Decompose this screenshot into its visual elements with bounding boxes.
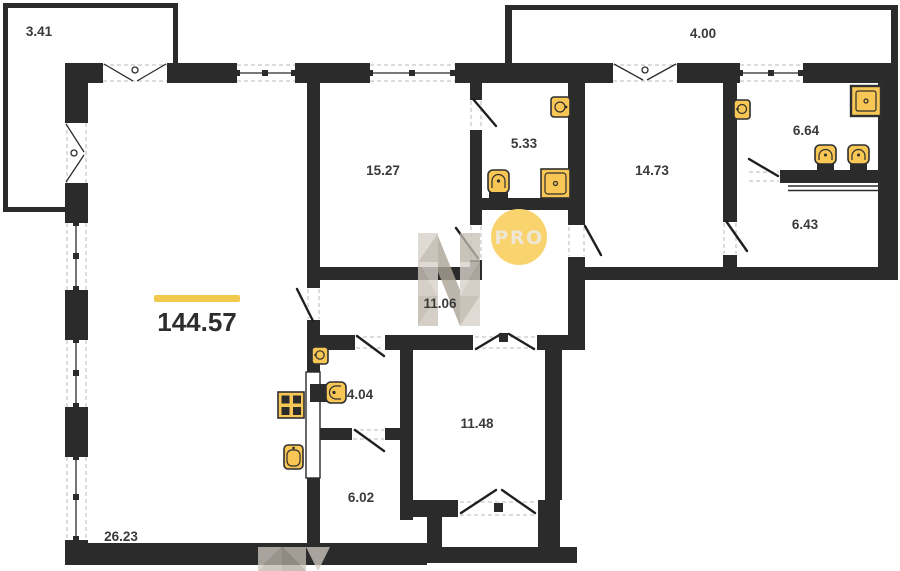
toilet-icon [488,170,509,200]
room-label-wc: 4.04 [347,387,374,402]
room-label-hallway: 11.06 [423,296,457,311]
sink-icon [734,100,750,119]
floor-plan-canvas: PRO 3.41 4.00 15.27 5.33 14.73 6.64 6.43… [0,0,900,571]
door-bathroom-1 [471,99,496,129]
hall-double-door [475,333,535,349]
floor-plan: PRO 3.41 4.00 15.27 5.33 14.73 6.64 6.43… [0,0,900,571]
casement-window-balcony-small [103,64,167,81]
shelf-line [788,186,878,191]
door-bathroom-2 [749,159,779,181]
shower-icon [541,169,570,198]
casement-window-balcony-large [613,64,677,81]
room-label-balcony-large: 4.00 [690,26,716,41]
room-label-balcony-small: 3.41 [26,24,53,39]
shower-icon [851,86,881,116]
room-label-bedroom-1: 15.27 [366,163,400,178]
total-area-block: 144.57 [154,295,240,337]
window-left-3 [67,454,86,542]
sink-icon [551,97,570,117]
toilet-icon [815,145,836,171]
sink-icon [312,347,328,364]
door-wc [356,336,384,356]
room-label-living-kitchen: 26.23 [104,529,138,544]
total-area-accent-bar [154,295,240,302]
door-bathroom-3 [353,430,384,451]
room-label-dressing: 6.43 [792,217,819,232]
window-left-1 [67,220,86,292]
casement-window-left [66,123,86,183]
window-top-2 [367,65,456,81]
door-bedroom-2 [569,226,601,256]
sink-icon [284,445,303,469]
toilet-icon [848,145,869,171]
entrance-double-door [460,490,536,515]
room-label-bedroom-2: 14.73 [635,163,669,178]
room-label-bathroom-3: 6.02 [348,490,374,505]
total-area-value: 144.57 [157,307,237,337]
room-label-entry-hall: 11.48 [460,416,494,431]
window-left-2 [67,337,86,409]
toilet-icon [310,382,346,403]
stove-icon [278,392,304,418]
pro-badge: PRO [491,209,547,265]
room-label-bathroom-1: 5.33 [511,136,538,151]
watermark-fragment [258,547,330,571]
letter-n-watermark-logo [418,233,480,326]
window-top-1 [234,65,297,81]
room-label-bathroom-2: 6.64 [793,123,820,138]
window-top-right [737,65,804,81]
door-dressing [724,221,747,254]
pro-badge-text: PRO [494,227,543,249]
door-living [297,289,319,321]
